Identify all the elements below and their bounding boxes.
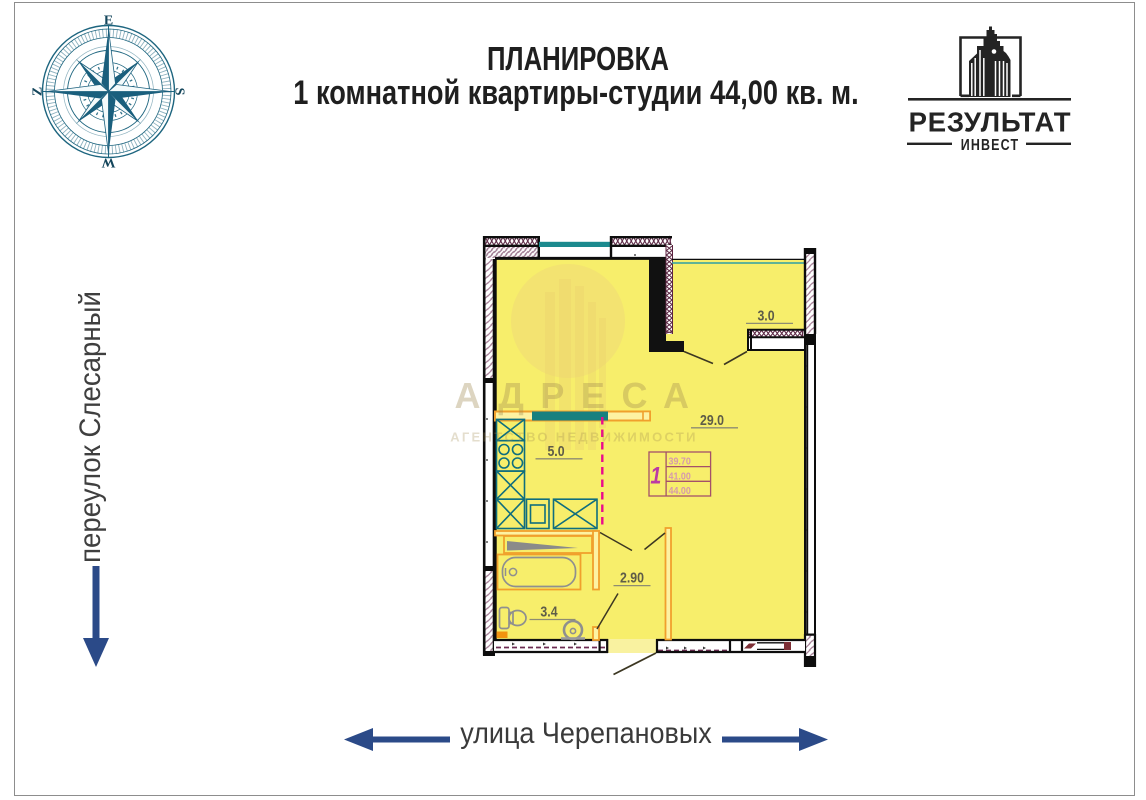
svg-text:3.4: 3.4: [540, 604, 558, 620]
svg-text:Z: Z: [31, 87, 46, 96]
svg-text:44.00: 44.00: [669, 485, 692, 497]
svg-text:41.00: 41.00: [669, 471, 692, 483]
svg-text:2.90: 2.90: [620, 570, 644, 586]
svg-text:АГЕНТСТВО НЕДВИЖИМОСТИ: АГЕНТСТВО НЕДВИЖИМОСТИ: [450, 430, 698, 445]
svg-text:АДРЕСА: АДРЕСА: [454, 375, 705, 416]
svg-text:5.0: 5.0: [547, 443, 564, 459]
svg-text:E: E: [104, 14, 113, 29]
svg-text:3.0: 3.0: [757, 308, 774, 324]
svg-text:ИНВЕСТ: ИНВЕСТ: [961, 137, 1020, 155]
svg-text:W: W: [102, 155, 116, 170]
svg-text:РЕЗУЛЬТАТ: РЕЗУЛЬТАТ: [909, 107, 1072, 138]
svg-text:1: 1: [650, 461, 661, 489]
svg-text:39.70: 39.70: [669, 456, 692, 468]
svg-text:S: S: [172, 88, 187, 96]
